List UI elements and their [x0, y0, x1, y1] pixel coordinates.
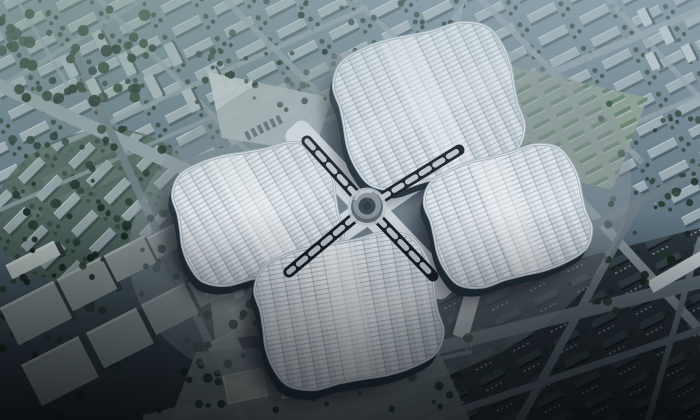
vignette-southwest — [0, 0, 700, 420]
scene-canvas — [0, 0, 700, 420]
aerial-render: Aerial rendering of a four-leaf-clover s… — [0, 0, 700, 420]
